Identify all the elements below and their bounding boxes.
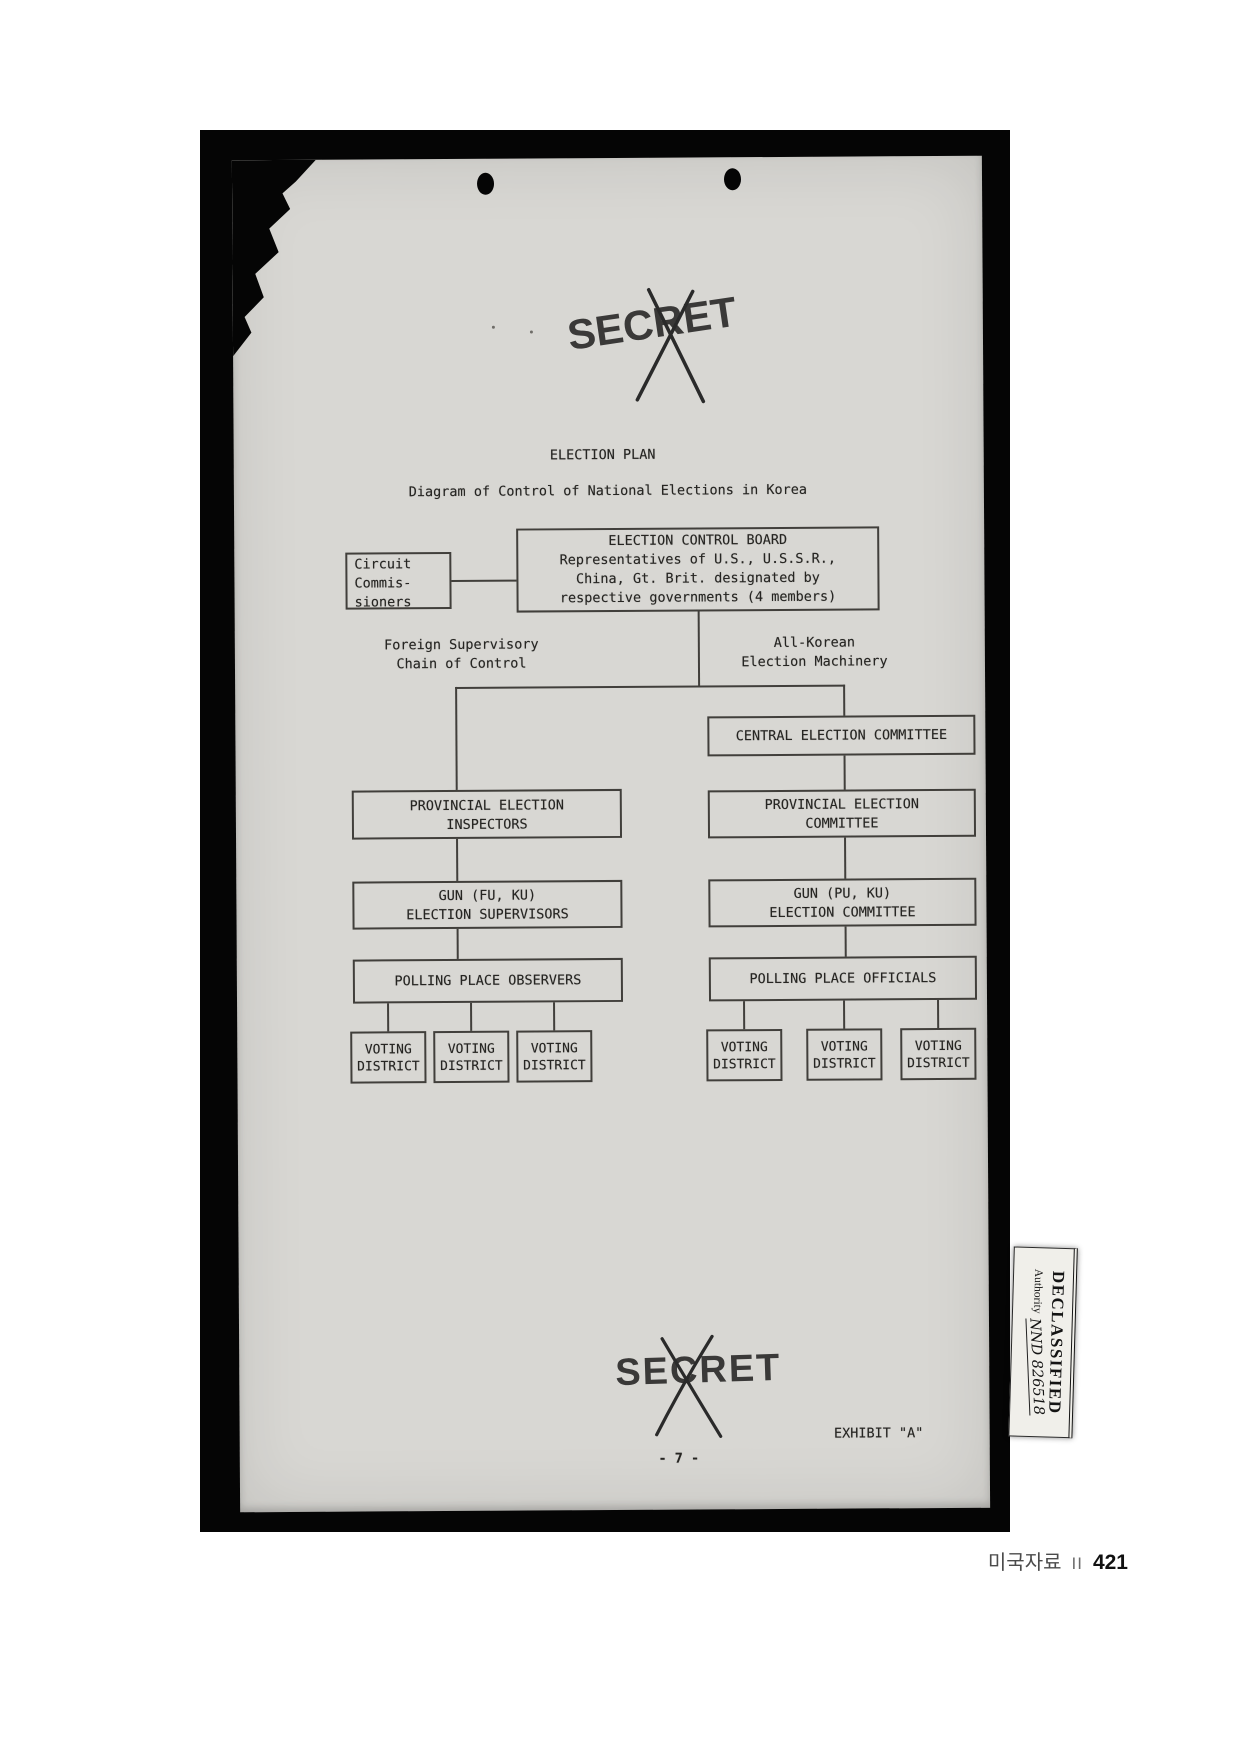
voting-district-box: VOTING DISTRICT	[516, 1030, 592, 1082]
voting-district-box: VOTING DISTRICT	[433, 1031, 509, 1083]
box-line: DISTRICT	[435, 1058, 507, 1075]
connector-line	[387, 1003, 389, 1031]
connector-line	[470, 1003, 472, 1031]
paper: SECRET ELECTION PLAN Diagram of Control …	[232, 156, 990, 1513]
box-line: COMMITTEE	[710, 814, 974, 835]
box-line: ELECTION SUPERVISORS	[354, 905, 620, 926]
box-line: VOTING	[518, 1040, 590, 1057]
central-election-committee-box: CENTRAL ELECTION COMMITTEE	[707, 715, 975, 757]
box-line: ELECTION CONTROL BOARD	[518, 530, 877, 551]
footer-volume-numeral: II	[1072, 1554, 1083, 1574]
box-line: GUN (FU, KU)	[354, 886, 620, 907]
box-line: sioners	[355, 593, 443, 613]
election-control-board-box: ELECTION CONTROL BOARD Representatives o…	[516, 526, 880, 612]
box-line: DISTRICT	[352, 1058, 424, 1075]
circuit-commissioners-box: Circuit Commis- sioners	[345, 552, 451, 610]
page-number: - 7 -	[644, 1449, 714, 1468]
document-subtitle: Diagram of Control of National Elections…	[338, 480, 878, 502]
box-line: DISTRICT	[902, 1055, 974, 1072]
connector-line	[844, 838, 846, 879]
label-line: Chain of Control	[349, 654, 574, 674]
box-line: VOTING	[708, 1039, 780, 1056]
document-title: ELECTION PLAN	[448, 445, 758, 466]
box-line: VOTING	[352, 1041, 424, 1058]
box-line: Circuit	[354, 555, 442, 575]
connector-line	[457, 929, 459, 959]
box-line: ELECTION COMMITTEE	[710, 903, 974, 924]
voting-district-box: VOTING DISTRICT	[806, 1028, 882, 1080]
all-korean-label: All-Korean Election Machinery	[702, 633, 927, 672]
connector-line	[843, 685, 845, 716]
connector-line	[844, 756, 846, 790]
voting-district-box: VOTING DISTRICT	[706, 1029, 782, 1081]
box-line: DISTRICT	[708, 1056, 780, 1073]
connector-line	[843, 1001, 845, 1029]
footer-page-number: 421	[1093, 1551, 1128, 1575]
box-line: VOTING	[902, 1038, 974, 1055]
box-line: Commis-	[354, 574, 442, 594]
declassified-stamp: DECLASSIFIED Authority NND 826518	[1008, 1246, 1077, 1438]
strikethrough-x-icon	[627, 285, 724, 408]
declassified-title: DECLASSIFIED	[1043, 1248, 1068, 1436]
polling-place-observers-box: POLLING PLACE OBSERVERS	[353, 958, 623, 1004]
connector-line	[451, 580, 516, 582]
label-line: Foreign Supervisory	[349, 635, 574, 655]
paper-speck	[492, 326, 495, 329]
polling-place-officials-box: POLLING PLACE OFFICIALS	[709, 956, 977, 1002]
voting-district-box: VOTING DISTRICT	[900, 1028, 976, 1080]
punch-hole	[477, 173, 494, 195]
foreign-supervisory-label: Foreign Supervisory Chain of Control	[349, 635, 574, 674]
box-line: INSPECTORS	[354, 815, 620, 836]
box-line: VOTING	[435, 1041, 507, 1058]
box-line: DISTRICT	[808, 1055, 880, 1072]
box-line: DISTRICT	[518, 1057, 590, 1074]
connector-line	[455, 687, 458, 790]
box-line: CENTRAL ELECTION COMMITTEE	[709, 717, 973, 755]
connector-line	[456, 839, 458, 881]
connector-line	[937, 1000, 939, 1028]
gun-election-supervisors-box: GUN (FU, KU) ELECTION SUPERVISORS	[352, 880, 622, 930]
scanned-document-page: SECRET ELECTION PLAN Diagram of Control …	[0, 0, 1240, 1755]
authority-handwritten-value: NND 826518	[1025, 1318, 1046, 1416]
label-line: All-Korean	[702, 633, 927, 653]
connector-line	[698, 611, 700, 687]
box-line: PROVINCIAL ELECTION	[354, 796, 620, 817]
exhibit-label: EXHIBIT "A"	[809, 1424, 949, 1444]
box-line: respective governments (4 members)	[519, 587, 878, 608]
box-line: VOTING	[808, 1038, 880, 1055]
connector-line	[743, 1001, 745, 1029]
paper-speck	[530, 330, 533, 333]
provincial-election-committee-box: PROVINCIAL ELECTION COMMITTEE	[708, 789, 976, 839]
connector-line	[553, 1002, 555, 1030]
gun-election-committee-box: GUN (PU, KU) ELECTION COMMITTEE	[708, 878, 976, 928]
connector-line	[455, 685, 845, 689]
box-line: PROVINCIAL ELECTION	[710, 795, 974, 816]
footer-label: 미국자료	[988, 1546, 1062, 1575]
box-line: POLLING PLACE OBSERVERS	[355, 960, 621, 1002]
label-line: Election Machinery	[702, 652, 927, 672]
connector-line	[845, 927, 847, 957]
box-line: China, Gt. Brit. designated by	[518, 568, 877, 589]
voting-district-box: VOTING DISTRICT	[350, 1031, 426, 1083]
box-line: GUN (PU, KU)	[710, 884, 974, 905]
torn-corner	[232, 160, 317, 357]
box-line: Representatives of U.S., U.S.S.R.,	[518, 549, 877, 570]
box-line: POLLING PLACE OFFICIALS	[711, 958, 975, 1000]
strikethrough-x-icon	[648, 1332, 731, 1440]
punch-hole	[724, 168, 741, 190]
authority-label: Authority	[1031, 1269, 1044, 1314]
provincial-election-inspectors-box: PROVINCIAL ELECTION INSPECTORS	[352, 789, 622, 840]
book-footer: 미국자료 II 421	[938, 1546, 1128, 1575]
